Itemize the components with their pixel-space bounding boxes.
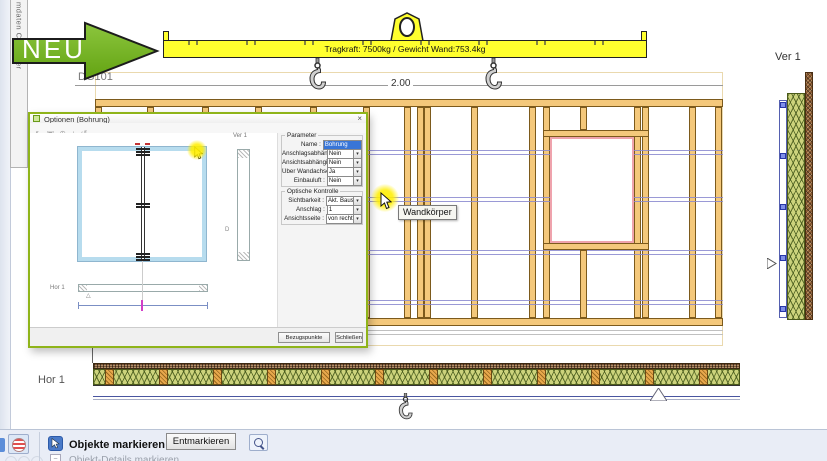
dialog-app-icon (33, 115, 40, 122)
hor-section-label: Hor 1 (38, 374, 65, 386)
tooltip-wandkoerper: Wandkörper (398, 205, 457, 220)
group-title: Parameter (285, 132, 318, 139)
hor-section-line (93, 399, 740, 400)
preview-red-mark (145, 143, 150, 145)
ver-section-insulation (787, 93, 805, 320)
entmarkieren-button[interactable]: Entmarkieren (166, 433, 236, 450)
group-title: Optische Kontrolle (285, 188, 340, 195)
group-box: ParameterName :BohrungAnschlagsabhängig … (281, 135, 363, 187)
window-header[interactable] (543, 130, 649, 137)
ghost-icon (5, 456, 17, 461)
wall-top-plate[interactable] (95, 99, 723, 107)
mouse-cursor (380, 192, 392, 210)
preview-ver-label: Ver 1 (233, 133, 247, 139)
hor-section-insulation (93, 369, 740, 385)
lifting-eye (385, 12, 429, 41)
chevron-down-icon[interactable]: ▾ (353, 168, 361, 176)
dialog-optionen-bohrung: Optionen (Bohrung) × ↖▣⊕+↺ Ver 1 D Hor 1 (28, 112, 368, 348)
cripple-stud-bottom[interactable] (580, 250, 587, 318)
parameter-label: Name : (282, 141, 323, 148)
parameter-label: Über Wandachse : (282, 168, 327, 175)
window-sill[interactable] (543, 243, 649, 250)
toolbar-separator (39, 432, 40, 461)
parameter-label: Einbauluft : (282, 177, 327, 184)
field-value: Nein (328, 177, 353, 185)
mark-object-details-label: Objekt-Details markieren (69, 455, 179, 461)
chevron-down-icon[interactable]: ▾ (353, 197, 361, 205)
field-value: Ja (328, 168, 353, 176)
chevron-down-icon[interactable]: ▾ (353, 150, 361, 158)
dropdown-field[interactable]: von rechts▾ (326, 214, 362, 224)
chevron-down-icon[interactable]: ▾ (353, 206, 361, 214)
field-value: 1 (328, 206, 353, 214)
schliessen-button[interactable]: Schließen (335, 332, 363, 343)
parameter-label: Ansichtsabhängig : (282, 159, 327, 166)
neu-arrow-label: NEU (22, 34, 86, 65)
dropdown-field[interactable]: Nein▾ (327, 176, 362, 186)
field-value: von rechts (327, 215, 353, 223)
beam-weld-ticks (164, 41, 646, 45)
dimension-label: 2.00 (388, 78, 413, 89)
parameter-label: Anschlag : (282, 206, 327, 213)
crane-hook-right[interactable] (485, 58, 502, 94)
sphere-toggle-button[interactable] (8, 434, 29, 454)
crane-hook-left[interactable] (309, 58, 326, 94)
parameter-label: Sichtbarkeit : (282, 197, 326, 204)
preview-ver-strip (237, 149, 250, 261)
dialog-footer: Bezugspunkte ändern Schließen (30, 327, 366, 346)
window-opening[interactable] (550, 137, 634, 243)
ghost-icon (31, 456, 43, 461)
object-details-icon: ~ (50, 454, 61, 461)
app-canvas: mdaten Container DG101 2.00 NEU Tragkraf… (0, 0, 827, 461)
ghost-icon (18, 456, 30, 461)
mark-objects-label: Objekte markieren (69, 439, 165, 451)
hor-marker-triangle (650, 388, 667, 401)
preview-hover-highlight (187, 140, 207, 160)
preview-connector-line (142, 261, 143, 305)
preview-dim-tick (78, 302, 79, 309)
hor-section-line (93, 385, 740, 386)
striped-sphere-icon (12, 438, 26, 452)
preview-dim-tick (207, 302, 208, 309)
status-toolbar: Objekte markieren Entmarkieren ~ Objekt-… (0, 429, 827, 461)
mark-objects-icon (48, 436, 63, 451)
close-icon[interactable]: × (357, 114, 362, 123)
field-value: Akt. Baustein (327, 197, 353, 205)
ver-section-panel (779, 100, 787, 318)
field-value: Bohrung (324, 141, 361, 149)
bezugspunkte-aendern-button[interactable]: Bezugspunkte ändern (278, 332, 330, 343)
parameter-row: Einbauluft :Nein▾ (282, 176, 362, 185)
wall-leader-line (92, 346, 93, 363)
preview-d-label: D (225, 227, 229, 233)
field-value: Nein (328, 150, 353, 158)
parameter-row: Ansichtsseite :von rechts▾ (282, 214, 362, 223)
chevron-down-icon[interactable]: ▾ (353, 159, 361, 167)
lifting-beam[interactable]: Tragkraft: 7500kg / Gewicht Wand:753.4kg (163, 40, 647, 58)
preview-hor-strip (78, 284, 208, 292)
field-value: Nein (328, 159, 353, 167)
beam-capacity-label: Tragkraft: 7500kg / Gewicht Wand:753.4kg (325, 44, 486, 54)
cripple-stud-top[interactable] (580, 107, 587, 130)
preview-hor-label: Hor 1 (50, 285, 65, 291)
parameter-label: Ansichtsseite : (282, 215, 326, 222)
group-box: Optische KontrolleSichtbarkeit :Akt. Bau… (281, 191, 363, 225)
preview-red-mark (135, 143, 140, 145)
preview-triangle-mark: △ (86, 292, 91, 299)
chevron-down-icon[interactable]: ▾ (353, 215, 361, 223)
ver-marker-triangle (767, 258, 777, 269)
hor-section-line (93, 396, 740, 397)
dialog-preview-area[interactable]: Ver 1 D Hor 1 △ (30, 133, 277, 327)
clipped-panel-icon[interactable] (0, 438, 5, 452)
chevron-down-icon[interactable]: ▾ (353, 177, 361, 185)
dialog-parameter-panel: ParameterName :BohrungAnschlagsabhängig … (277, 133, 366, 327)
parameter-label: Anschlagsabhängig : (282, 150, 327, 157)
crane-hook-bottom[interactable] (398, 393, 413, 423)
preview-dimension-line (78, 305, 208, 306)
preview-insert-point (141, 300, 143, 311)
ver-section-label: Ver 1 (775, 51, 801, 63)
find-button[interactable] (249, 434, 268, 451)
ver-section-cladding (805, 72, 813, 320)
